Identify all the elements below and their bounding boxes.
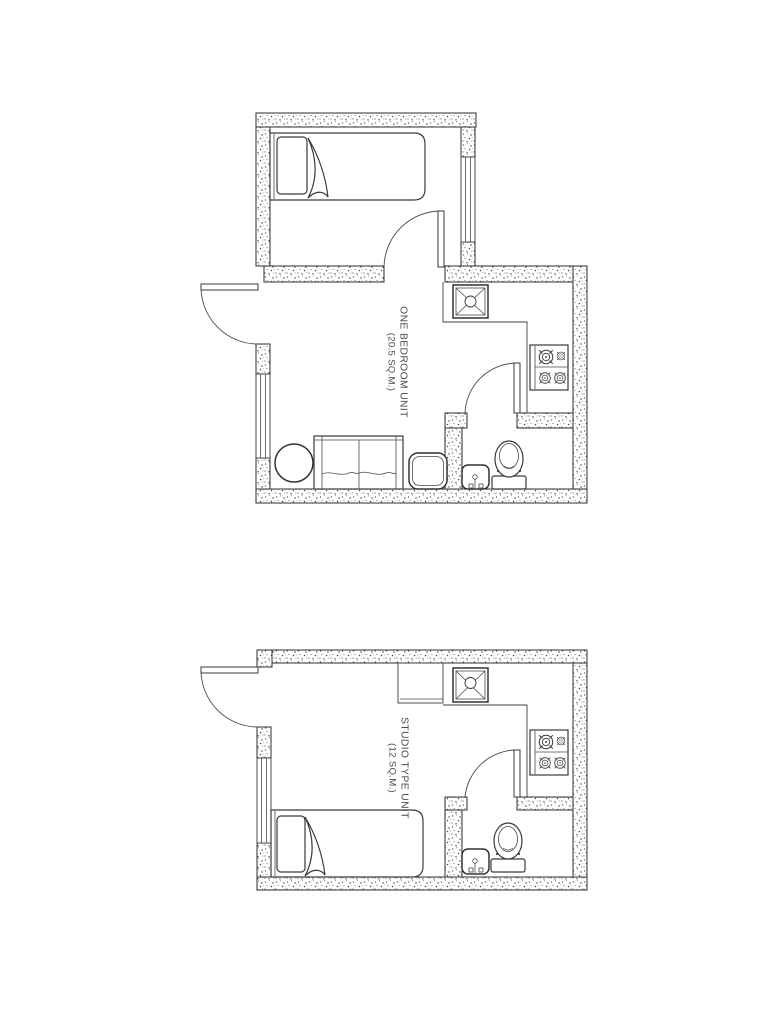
- door-swing-arc: [465, 363, 517, 415]
- kitchen-sink: [453, 668, 488, 702]
- round-table: [275, 444, 313, 482]
- lavatory-sink: [462, 465, 489, 489]
- wall-segment: [573, 663, 587, 877]
- door-leaf: [514, 363, 520, 413]
- stove: [530, 345, 568, 390]
- bathroom-door: [465, 363, 520, 415]
- pillow: [277, 137, 307, 194]
- side-table: [409, 453, 447, 489]
- door-swing-arc: [384, 211, 441, 267]
- wall-segment: [264, 266, 384, 282]
- studio-window: [257, 758, 271, 843]
- wall-segment: [256, 113, 476, 127]
- wall-segment: [445, 266, 587, 282]
- toilet: [492, 441, 526, 489]
- door-leaf: [201, 284, 258, 290]
- unit-label: STUDIO TYPE UNIT (12 SQ.M.): [387, 717, 410, 819]
- toilet: [491, 823, 525, 872]
- wall-segment: [461, 127, 475, 157]
- living-room-window: [256, 374, 270, 458]
- bathroom-door: [465, 750, 520, 797]
- sofa: [314, 436, 403, 489]
- door-swing-arc: [201, 287, 258, 344]
- stove: [530, 730, 568, 775]
- wall-segment: [256, 127, 270, 266]
- wall-segment: [573, 266, 587, 489]
- bedroom-door: [384, 211, 444, 267]
- toilet-bowl: [495, 441, 523, 477]
- floor-plan-drawing: ONE BEDROOM UNIT (20.5 SQ.M.): [0, 0, 768, 1024]
- sink-drain: [465, 678, 476, 689]
- wall-segment: [256, 344, 270, 374]
- entry-door: [201, 284, 258, 344]
- studio-type-unit-plan: STUDIO TYPE UNIT (12 SQ.M.): [201, 650, 587, 890]
- unit-area: (12 SQ.M.): [387, 743, 398, 793]
- sink-drain: [465, 296, 476, 307]
- door-leaf: [201, 667, 258, 673]
- floor-plan-page: ONE BEDROOM UNIT (20.5 SQ.M.): [0, 0, 768, 1024]
- wall-segment: [517, 413, 573, 428]
- lavatory-sink: [462, 849, 489, 874]
- wall-segment: [445, 413, 467, 428]
- wall-segment: [257, 843, 271, 877]
- bedroom-window: [461, 157, 475, 242]
- entry-door: [201, 667, 258, 727]
- unit-label: ONE BEDROOM UNIT (20.5 SQ.M.): [386, 306, 409, 418]
- wall-segment: [461, 242, 475, 266]
- kitchen-sink: [453, 285, 488, 318]
- door-leaf: [438, 211, 444, 267]
- toilet-tank: [492, 476, 526, 489]
- unit-title: ONE BEDROOM UNIT: [398, 306, 409, 418]
- wall-segment: [257, 650, 272, 667]
- wall-segment: [257, 650, 587, 663]
- toilet-bowl: [494, 823, 522, 859]
- wall-segment: [257, 877, 587, 890]
- wall-segment: [257, 727, 271, 758]
- kitchen-cabinet: [398, 663, 443, 703]
- unit-area: (20.5 SQ.M.): [386, 333, 397, 392]
- door-leaf: [514, 750, 520, 797]
- wall-segment: [517, 797, 573, 810]
- pillow: [277, 816, 305, 872]
- wall-segment: [256, 458, 270, 489]
- toilet-tank: [491, 859, 525, 872]
- door-swing-arc: [465, 750, 517, 797]
- bed: [271, 810, 423, 877]
- door-swing-arc: [201, 670, 258, 727]
- unit-title: STUDIO TYPE UNIT: [399, 717, 410, 819]
- bed: [270, 133, 425, 200]
- wall-segment: [256, 489, 587, 503]
- wall-segment: [445, 797, 467, 810]
- one-bedroom-unit-plan: ONE BEDROOM UNIT (20.5 SQ.M.): [201, 113, 587, 503]
